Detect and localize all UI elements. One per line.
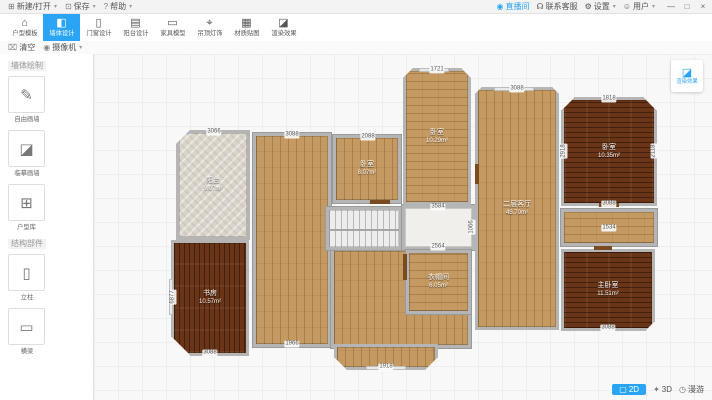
trash-icon: ⌧	[8, 43, 17, 52]
door-window-design-icon: ▯	[95, 17, 101, 29]
2d-icon: ▢	[619, 385, 627, 394]
material-textures-icon: ▦	[241, 17, 251, 29]
room-label: 卧室10.29m²	[406, 129, 468, 145]
new-open-icon: ⊞	[8, 2, 15, 11]
door	[370, 200, 390, 204]
design-canvas[interactable]: 阳台9.07m²书房10.57m²卧室8.07m²卧室10.29m²二层客厅45…	[94, 54, 712, 400]
tool-balcony-design[interactable]: ▤阳台设计	[117, 14, 154, 41]
balcony-design-icon: ▤	[130, 17, 140, 29]
room-label: 衣帽间6.05m²	[409, 274, 468, 290]
floorplan-library-icon: ⊞	[8, 184, 45, 221]
room-study[interactable]: 书房10.57m²	[171, 240, 249, 356]
chevron-down-icon: ▾	[652, 3, 655, 10]
tool-furniture-models[interactable]: ▭家具模型	[154, 14, 191, 41]
render-effects-button[interactable]: ◪ 渲染效果	[671, 60, 703, 92]
dimension-label: 2918	[561, 143, 568, 158]
dimension-label: 3584	[430, 204, 445, 211]
window-titlebar: ⊞新建/打开▾⊡保存▾?帮助▾ ◉直播间 ☊联系客服 ⚙设置▾ ☺用户▾ — □…	[0, 0, 712, 14]
floorplan-template-icon: ⌂	[21, 17, 28, 29]
room-balcony[interactable]: 阳台9.07m²	[176, 130, 250, 240]
chevron-down-icon: ▾	[613, 3, 616, 10]
roam-icon: ◷	[679, 385, 686, 394]
sidebar-item-floorplan-library[interactable]: ⊞户型库	[8, 184, 45, 232]
dimension-label: 3088	[509, 86, 524, 93]
tool-door-window-design[interactable]: ▯门窗设计	[80, 14, 117, 41]
tool-floorplan-template[interactable]: ⌂户型模板	[6, 14, 43, 41]
chevron-down-icon: ▾	[54, 3, 57, 10]
room-label: 阳台9.07m²	[179, 177, 247, 193]
room-stairs[interactable]	[326, 207, 402, 250]
free-draw-wall-icon: ✎	[8, 76, 45, 113]
room-label: 卧室10.35m²	[564, 144, 654, 160]
maximize-button[interactable]: □	[682, 2, 692, 11]
wall-design-icon: ◧	[56, 17, 66, 29]
view-mode-toggle: ▢2D ✦3D ◷漫游	[612, 384, 704, 395]
room-label: 卧室8.07m²	[336, 161, 398, 177]
camera-menu[interactable]: ◉摄像机▾	[43, 42, 82, 53]
menu-new-open[interactable]: ⊞新建/打开▾	[8, 1, 57, 12]
roam-button[interactable]: ◷漫游	[679, 384, 704, 395]
contact-support-link[interactable]: ☊联系客服	[537, 1, 578, 12]
minimize-button[interactable]: —	[666, 2, 676, 11]
dimension-label: 2088	[360, 134, 375, 141]
user-icon: ☺	[623, 2, 631, 11]
camera-icon: ◉	[43, 43, 50, 52]
menu-help[interactable]: ?帮助▾	[104, 1, 132, 12]
room-label: 主卧室11.51m²	[564, 282, 652, 298]
ceiling-lighting-icon: ⌖	[206, 17, 212, 29]
save-icon: ⊡	[65, 2, 72, 11]
sidebar: 墙体绘制✎自由画墙◪临摹画墙⊞户型库结构部件▯立柱▭横梁	[0, 54, 94, 400]
close-button[interactable]: ×	[698, 2, 708, 11]
dimension-label: 1534	[601, 225, 616, 232]
room-living-room[interactable]: 二层客厅45.70m²	[475, 87, 559, 330]
room-closet[interactable]: 衣帽间6.05m²	[406, 250, 471, 314]
3d-icon: ✦	[653, 385, 660, 394]
help-icon: ?	[104, 2, 108, 11]
dimension-label: 1818	[601, 96, 616, 103]
chevron-down-icon: ▾	[129, 3, 132, 10]
dimension-label: 6877	[170, 289, 177, 304]
clear-button[interactable]: ⌧清空	[8, 42, 35, 53]
room-bedroom-2[interactable]: 卧室8.07m²	[333, 135, 401, 203]
user-menu[interactable]: ☺用户▾	[623, 1, 655, 12]
door	[594, 246, 612, 250]
dimension-label: 3088	[284, 132, 299, 139]
room-hall-left[interactable]	[253, 133, 331, 347]
room-bedroom-1[interactable]: 卧室10.35m²	[561, 97, 657, 206]
chevron-down-icon: ▾	[79, 44, 82, 51]
app-window: ⊞新建/打开▾⊡保存▾?帮助▾ ◉直播间 ☊联系客服 ⚙设置▾ ☺用户▾ — □…	[0, 0, 712, 400]
tool-ceiling-lighting[interactable]: ⌖吊顶灯饰	[191, 14, 228, 41]
sidebar-item-beam[interactable]: ▭横梁	[8, 308, 45, 356]
view-2d-button[interactable]: ▢2D	[612, 384, 646, 395]
tool-material-textures[interactable]: ▦材质贴图	[228, 14, 265, 41]
menu-save[interactable]: ⊡保存▾	[65, 1, 96, 12]
live-room-link[interactable]: ◉直播间	[497, 1, 530, 12]
room-label: 书房10.57m²	[174, 290, 246, 306]
beam-icon: ▭	[8, 308, 45, 345]
section-title: 墙体绘制	[8, 61, 46, 71]
render-image-icon: ◪	[682, 67, 692, 79]
toolbar-tools: ⌂户型模板◧墙体设计▯门窗设计▤阳台设计▭家具模型⌖吊顶灯饰▦材质贴图◪渲染效果	[0, 14, 712, 41]
settings-menu[interactable]: ⚙设置▾	[585, 1, 616, 12]
menu-items: ⊞新建/打开▾⊡保存▾?帮助▾	[0, 1, 132, 12]
dimension-label: 3088	[202, 350, 217, 357]
live-icon: ◉	[497, 2, 504, 11]
sidebar-item-trace-draw-wall[interactable]: ◪临摹画墙	[8, 130, 45, 178]
dimension-label: 1966	[284, 341, 299, 348]
dimension-label: 3088	[600, 325, 615, 332]
room-bedroom-3[interactable]: 卧室10.29m²	[403, 68, 471, 205]
tool-render-effects[interactable]: ◪渲染效果	[265, 14, 302, 41]
action-bar: ⌧清空 ◉摄像机▾	[0, 41, 712, 55]
room-label: 二层客厅45.70m²	[478, 201, 556, 217]
sidebar-item-column[interactable]: ▯立柱	[8, 254, 45, 302]
sidebar-item-free-draw-wall[interactable]: ✎自由画墙	[8, 76, 45, 124]
dimension-label: 1721	[429, 67, 444, 74]
dimension-label: 3088	[601, 201, 616, 208]
chevron-down-icon: ▾	[93, 3, 96, 10]
dimension-label: 1918	[378, 364, 393, 371]
gear-icon: ⚙	[585, 2, 592, 11]
dimension-label: 1066	[469, 219, 476, 234]
dimension-label: 2564	[430, 244, 445, 251]
floorplan: 阳台9.07m²书房10.57m²卧室8.07m²卧室10.29m²二层客厅45…	[94, 54, 712, 400]
section-title: 结构部件	[8, 239, 46, 249]
headset-icon: ☊	[537, 2, 544, 11]
furniture-models-icon: ▭	[167, 17, 177, 29]
column-icon: ▯	[8, 254, 45, 291]
door	[475, 164, 479, 184]
view-3d-button[interactable]: ✦3D	[653, 385, 672, 394]
trace-draw-wall-icon: ◪	[8, 130, 45, 167]
tool-wall-design[interactable]: ◧墙体设计	[43, 14, 80, 41]
dimension-label: 3066	[206, 129, 221, 136]
room-master-bedroom[interactable]: 主卧室11.51m²	[561, 249, 655, 331]
render-effects-icon: ◪	[278, 17, 288, 29]
dimension-label: 2118	[651, 144, 658, 159]
door	[403, 254, 407, 280]
